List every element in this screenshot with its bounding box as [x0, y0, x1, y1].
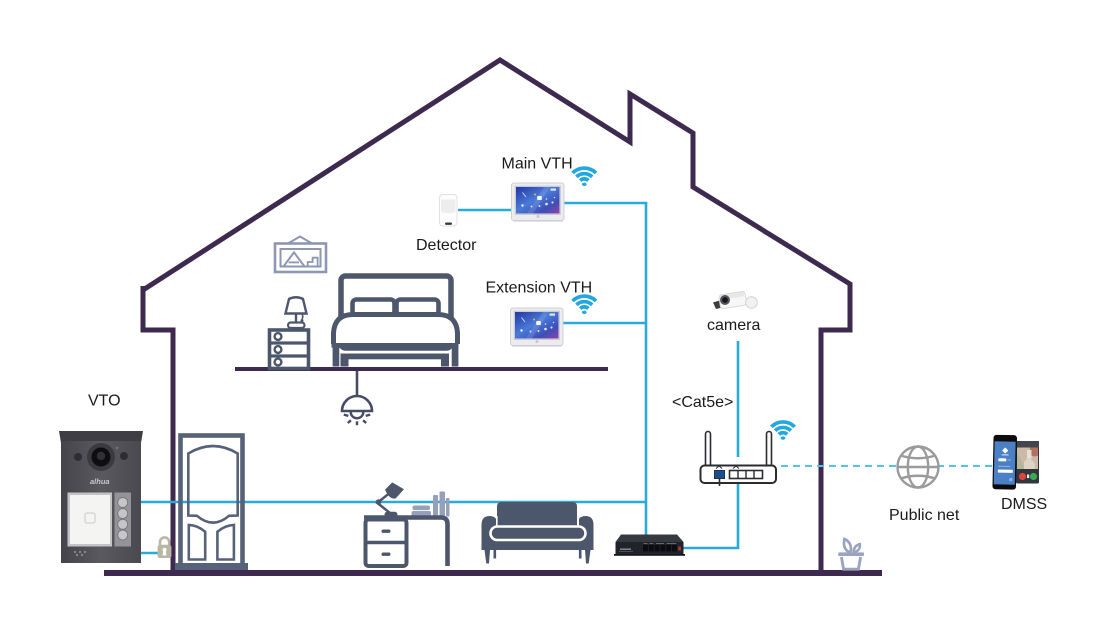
svg-text:Main VTH: Main VTH	[502, 156, 573, 173]
svg-text:Public net: Public net	[889, 507, 960, 524]
svg-text:alhua: alhua	[90, 477, 110, 486]
svg-text:DMSS: DMSS	[1001, 496, 1047, 513]
svg-text:<Cat5e>: <Cat5e>	[672, 394, 733, 411]
svg-text:camera: camera	[707, 317, 760, 334]
svg-text:Detector: Detector	[416, 237, 477, 254]
svg-text:VTO: VTO	[88, 393, 121, 410]
svg-text:Extension VTH: Extension VTH	[486, 279, 593, 296]
